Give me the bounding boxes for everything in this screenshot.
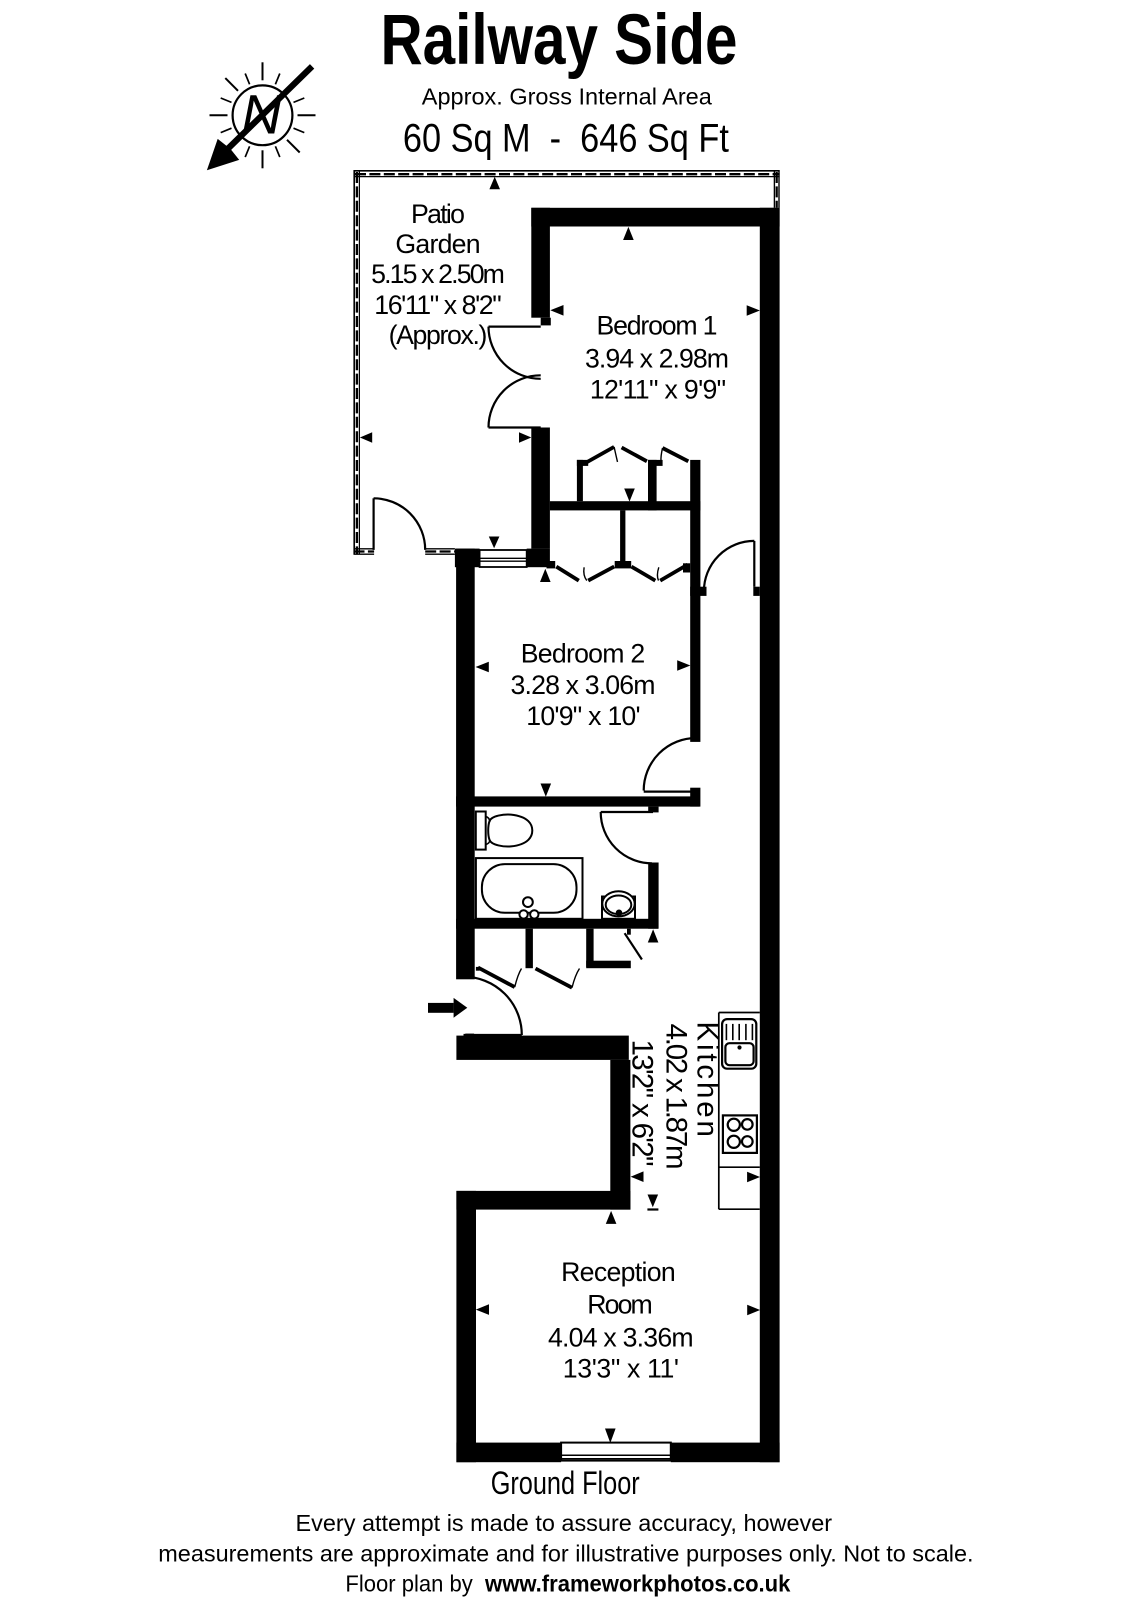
svg-text:3.94 x 2.98m: 3.94 x 2.98m xyxy=(585,343,729,373)
svg-text:16'11" x 8'2": 16'11" x 8'2" xyxy=(374,290,501,320)
svg-text:60 Sq M - 646 Sq Ft: 60 Sq M - 646 Sq Ft xyxy=(403,117,729,161)
svg-text:Garden: Garden xyxy=(395,229,480,259)
svg-text:Approx. Gross Internal Area: Approx. Gross Internal Area xyxy=(422,84,713,110)
svg-text:4.04 x 3.36m: 4.04 x 3.36m xyxy=(548,1322,694,1352)
svg-text:3.28 x 3.06m: 3.28 x 3.06m xyxy=(511,670,656,700)
svg-text:measurements are approximate a: measurements are approximate and for ill… xyxy=(158,1541,973,1567)
svg-text:Ground Floor: Ground Floor xyxy=(491,1465,640,1501)
svg-text:Reception: Reception xyxy=(561,1257,676,1287)
svg-text:N: N xyxy=(241,83,282,146)
svg-text:12'11" x 9'9": 12'11" x 9'9" xyxy=(590,374,726,404)
svg-text:Bedroom 2: Bedroom 2 xyxy=(521,639,646,669)
svg-text:Bedroom 1: Bedroom 1 xyxy=(597,311,718,341)
svg-text:5.15 x 2.50m: 5.15 x 2.50m xyxy=(371,259,505,289)
svg-text:(Approx.): (Approx.) xyxy=(389,320,488,350)
svg-text:Patio: Patio xyxy=(411,199,465,229)
svg-text:4.02 x 1.87m: 4.02 x 1.87m xyxy=(660,1024,693,1170)
svg-text:Every attempt is made to assur: Every attempt is made to assure accuracy… xyxy=(296,1510,833,1536)
svg-text:Room: Room xyxy=(587,1290,653,1320)
svg-text:Railway Side: Railway Side xyxy=(381,1,738,80)
svg-text:13'2" x 6'2": 13'2" x 6'2" xyxy=(625,1040,658,1167)
svg-text:13'3" x 11': 13'3" x 11' xyxy=(563,1353,679,1383)
svg-text:10'9" x 10': 10'9" x 10' xyxy=(526,701,640,731)
svg-text:Floor plan by www.frameworkph: Floor plan by www.frameworkphotos.co.uk xyxy=(345,1571,790,1597)
